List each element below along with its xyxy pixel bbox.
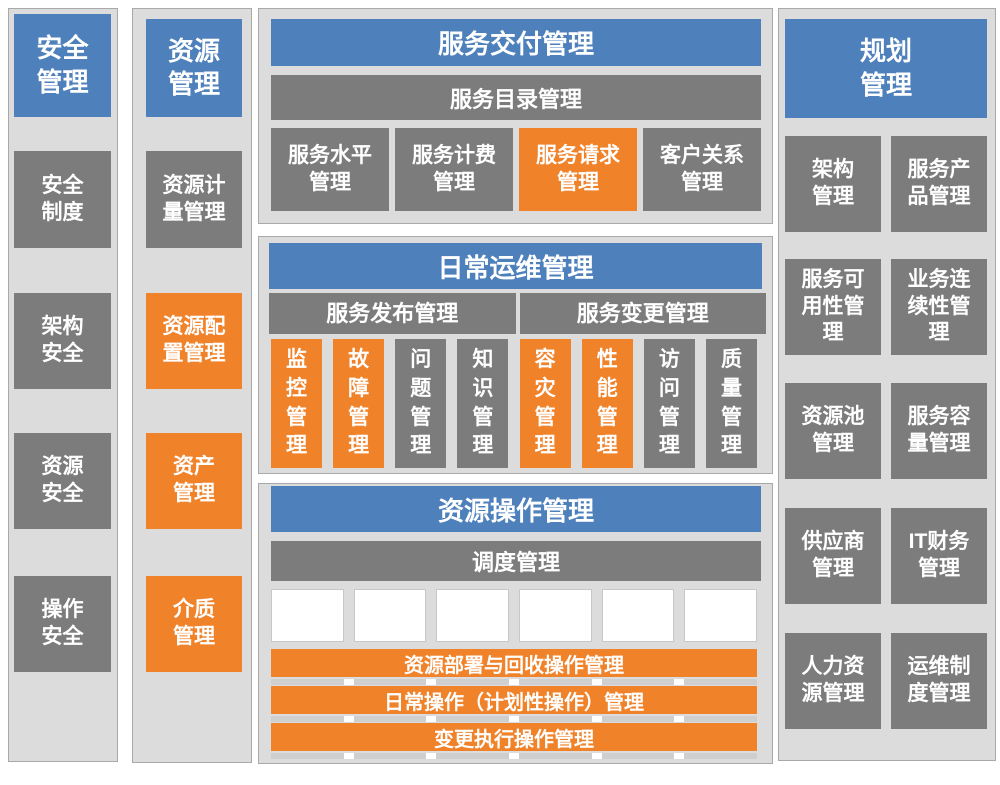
customer-relation-box: 客户关系 管理 (643, 128, 761, 211)
separator-segment (354, 679, 427, 685)
disaster-recovery-box: 容 灾 管 理 (520, 339, 571, 468)
resource-metering-box: 资源计 量管理 (146, 151, 242, 248)
separator-segment (684, 716, 757, 722)
service-catalog-bar: 服务目录管理 (271, 75, 761, 120)
separator-segment (271, 753, 344, 759)
separator-segment (602, 753, 675, 759)
app-data-box: 应用 数据 (271, 589, 344, 642)
daily-operations-panel: 日常运维管理 服务发布管理 服务变更管理 监 控 管 理 故 障 管 理 问 题… (258, 236, 773, 474)
planning-row: 服务可 用性管 理 业务连 续性管 理 (785, 259, 987, 355)
resource-operation-header: 资源操作管理 (271, 486, 761, 532)
separator-segment (436, 716, 509, 722)
separator-segment (519, 716, 592, 722)
service-request-box: 服务请求 管理 (519, 128, 637, 211)
resource-operation-panel: 资源操作管理 调度管理 应用 数据 平台 软件 计算 资源 存储 资源 网络 资… (258, 483, 773, 764)
security-header: 安全 管理 (14, 14, 111, 117)
asset-management-box: 资产 管理 (146, 433, 242, 529)
separator-segment (436, 753, 509, 759)
separator-segment (519, 753, 592, 759)
service-capacity-box: 服务容 量管理 (891, 383, 987, 479)
planning-column-panel: 规划 管理 架构 管理 服务产 品管理 服务可 用性管 理 业务连 续性管 理 … (778, 8, 996, 761)
service-billing-box: 服务计费 管理 (395, 128, 513, 211)
security-column-panel: 安全 管理 安全 制度 架构 安全 资源 安全 操作 安全 (8, 8, 118, 762)
separator-segment (271, 679, 344, 685)
operation-security-box: 操作 安全 (14, 576, 111, 672)
service-delivery-row: 服务水平 管理 服务计费 管理 服务请求 管理 客户关系 管理 (271, 128, 761, 211)
problem-management-box: 问 题 管 理 (395, 339, 446, 468)
planning-header: 规划 管理 (785, 19, 987, 118)
separator-segment (271, 716, 344, 722)
security-policy-box: 安全 制度 (14, 151, 111, 248)
it-ops-framework-diagram: 安全 管理 安全 制度 架构 安全 资源 安全 操作 安全 资源 管理 资源计 … (0, 0, 1000, 785)
separator-segment (519, 679, 592, 685)
service-delivery-header: 服务交付管理 (271, 19, 761, 66)
daily-planned-operation-bar: 日常操作（计划性操作）管理 (271, 686, 757, 714)
separator-row (271, 753, 757, 759)
quality-management-box: 质 量 管 理 (706, 339, 757, 468)
service-product-box: 服务产 品管理 (891, 136, 987, 232)
architecture-security-box: 架构 安全 (14, 293, 111, 389)
fault-management-box: 故 障 管 理 (333, 339, 384, 468)
access-management-box: 访 问 管 理 (644, 339, 695, 468)
separator-segment (354, 716, 427, 722)
monitoring-box: 监 控 管 理 (271, 339, 322, 468)
architecture-management-box: 架构 管理 (785, 136, 881, 232)
resource-security-box: 资源 安全 (14, 433, 111, 529)
network-resource-box: 网络 资源 (602, 589, 675, 642)
datacenter-resource-box: 机房 资源 (684, 589, 757, 642)
knowledge-management-box: 知 识 管 理 (457, 339, 508, 468)
deploy-recycle-bar: 资源部署与回收操作管理 (271, 649, 757, 677)
resource-column-panel: 资源 管理 资源计 量管理 资源配 置管理 资产 管理 介质 管理 (132, 8, 252, 763)
storage-resource-box: 存储 资源 (519, 589, 592, 642)
resource-pool-box: 资源池 管理 (785, 383, 881, 479)
service-level-box: 服务水平 管理 (271, 128, 389, 211)
performance-management-box: 性 能 管 理 (582, 339, 633, 468)
compute-resource-box: 计算 资源 (436, 589, 509, 642)
separator-segment (684, 753, 757, 759)
operation-bars: 资源部署与回收操作管理 日常操作（计划性操作）管理 变更执行操作管理 (271, 649, 757, 760)
separator-segment (354, 753, 427, 759)
planning-row: 人力资 源管理 运维制 度管理 (785, 633, 987, 729)
daily-operations-header: 日常运维管理 (269, 243, 762, 289)
business-continuity-box: 业务连 续性管 理 (891, 259, 987, 355)
planning-row: 供应商 管理 IT财务 管理 (785, 508, 987, 604)
separator-segment (684, 679, 757, 685)
resource-header: 资源 管理 (146, 19, 242, 117)
separator-row (271, 716, 757, 722)
planning-row: 架构 管理 服务产 品管理 (785, 136, 987, 232)
separator-segment (602, 679, 675, 685)
scheduling-bar: 调度管理 (271, 541, 761, 581)
daily-operations-row: 监 控 管 理 故 障 管 理 问 题 管 理 知 识 管 理 容 灾 管 理 … (271, 339, 757, 468)
service-delivery-panel: 服务交付管理 服务目录管理 服务水平 管理 服务计费 管理 服务请求 管理 客户… (258, 8, 773, 224)
planning-row: 资源池 管理 服务容 量管理 (785, 383, 987, 479)
daily-operations-groups: 服务发布管理 服务变更管理 (269, 293, 766, 334)
it-finance-box: IT财务 管理 (891, 508, 987, 604)
separator-segment (602, 716, 675, 722)
platform-software-box: 平台 软件 (354, 589, 427, 642)
change-execution-bar: 变更执行操作管理 (271, 723, 757, 751)
ops-policy-box: 运维制 度管理 (891, 633, 987, 729)
separator-row (271, 679, 757, 685)
resource-config-box: 资源配 置管理 (146, 293, 242, 389)
media-management-box: 介质 管理 (146, 576, 242, 672)
separator-segment (436, 679, 509, 685)
hr-management-box: 人力资 源管理 (785, 633, 881, 729)
supplier-management-box: 供应商 管理 (785, 508, 881, 604)
service-availability-box: 服务可 用性管 理 (785, 259, 881, 355)
resource-types-row: 应用 数据 平台 软件 计算 资源 存储 资源 网络 资源 机房 资源 (271, 589, 757, 642)
service-release-bar: 服务发布管理 (269, 293, 516, 334)
service-change-bar: 服务变更管理 (520, 293, 767, 334)
